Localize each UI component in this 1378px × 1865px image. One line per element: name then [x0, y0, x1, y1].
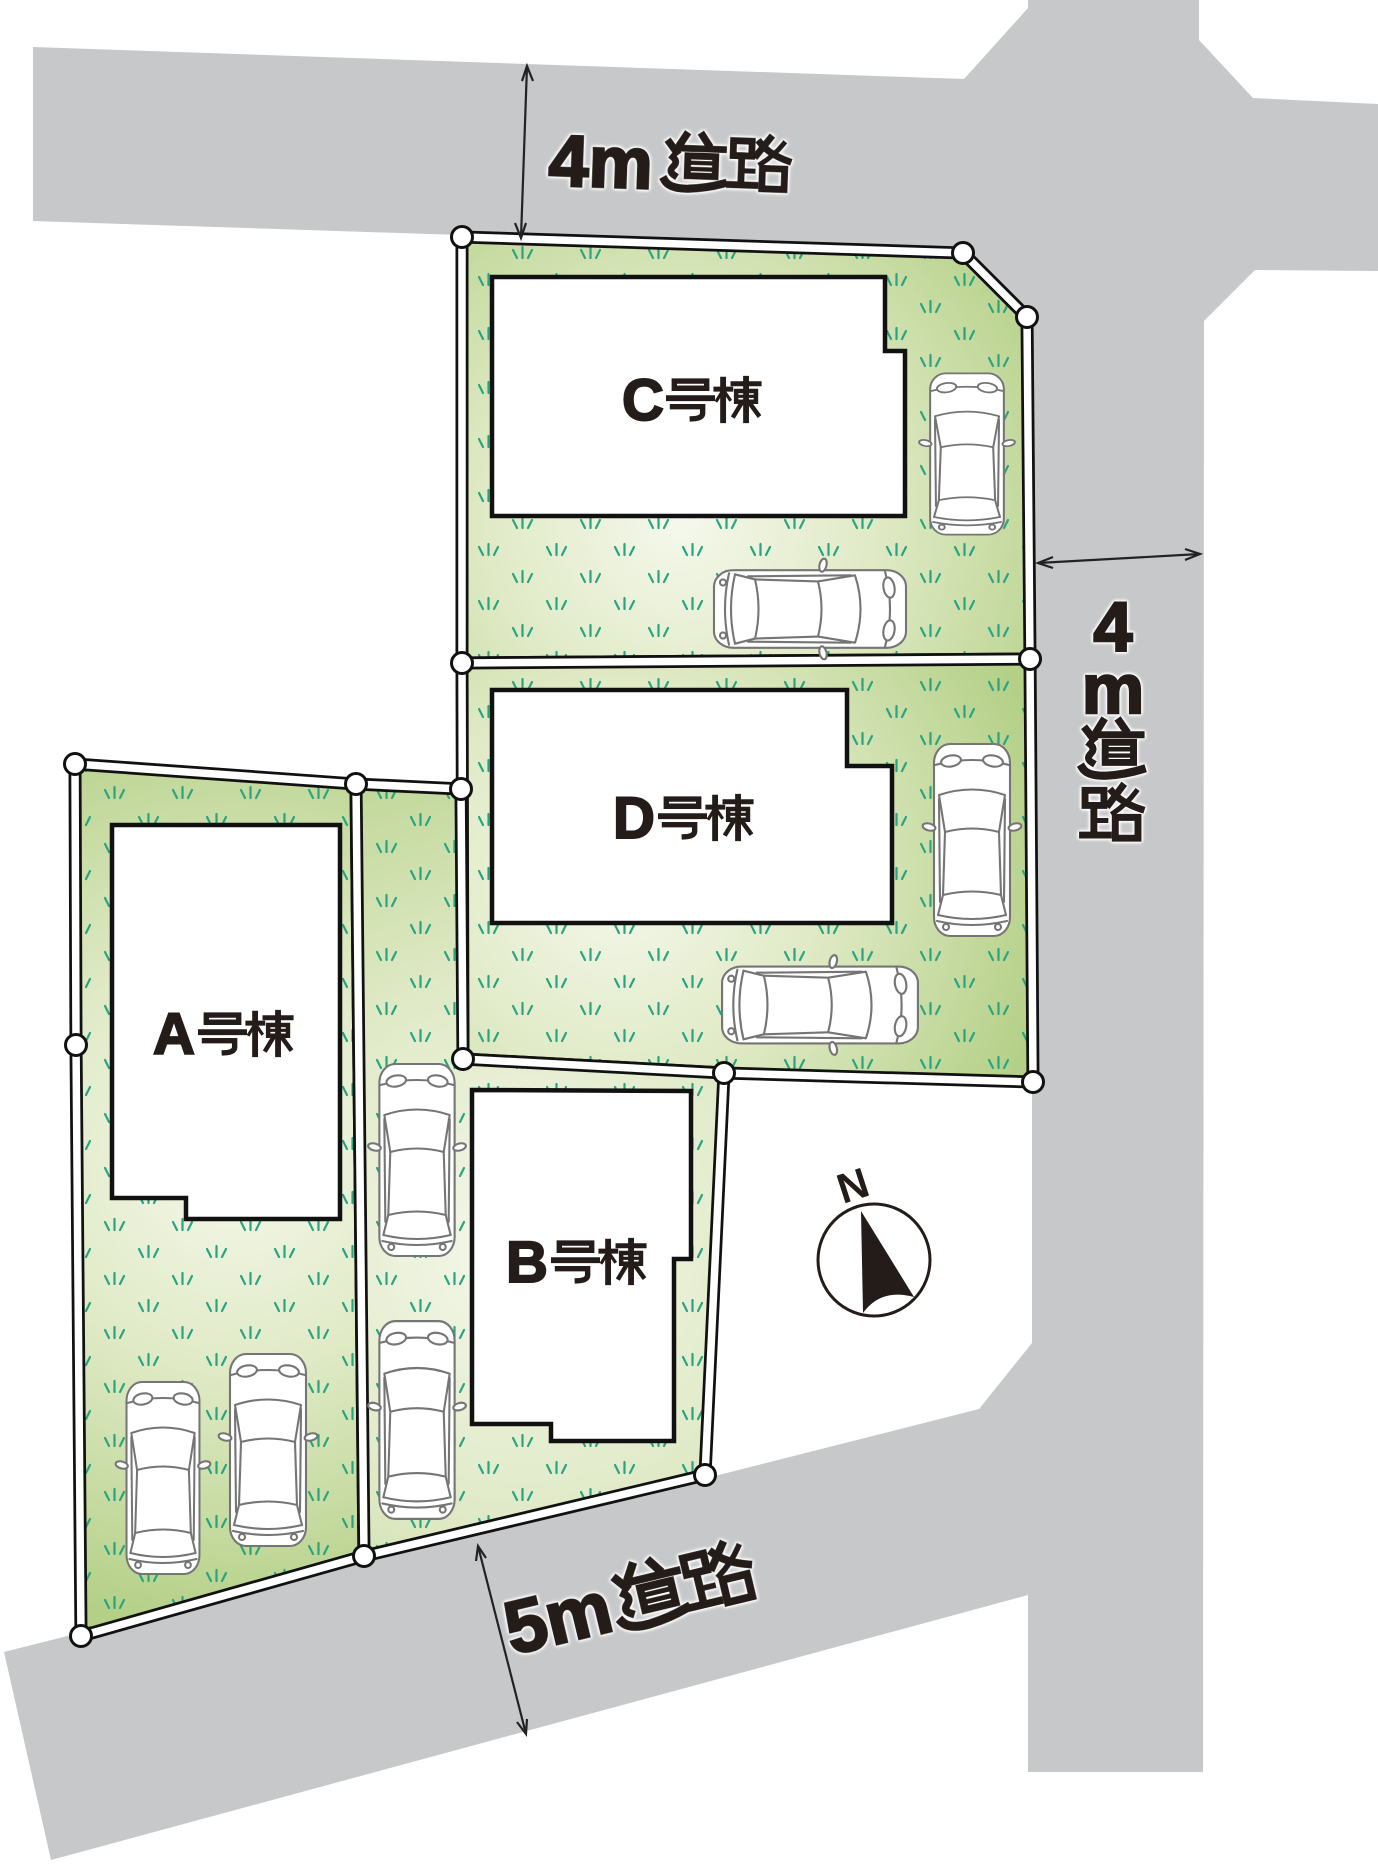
svg-text:C: C: [622, 368, 664, 433]
svg-text:B: B: [506, 1230, 548, 1295]
svg-text:4m: 4m: [547, 121, 654, 205]
svg-text:m: m: [1082, 650, 1144, 728]
svg-text:D: D: [613, 786, 655, 851]
svg-text:A: A: [153, 1002, 195, 1067]
